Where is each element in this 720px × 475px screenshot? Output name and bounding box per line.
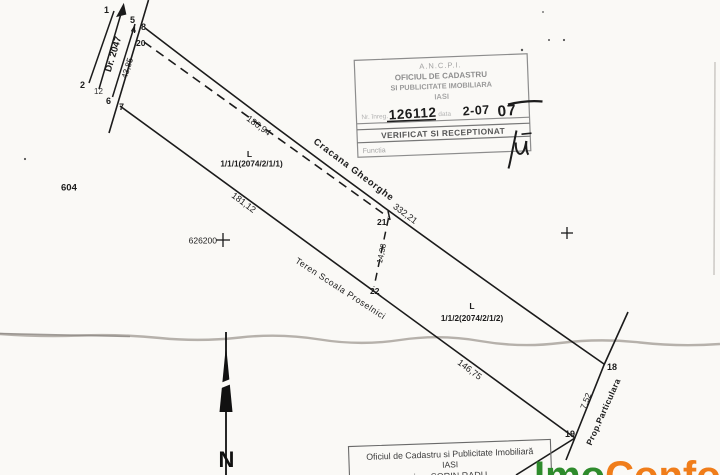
svg-text:626200: 626200 bbox=[189, 236, 218, 246]
svg-text:19: 19 bbox=[565, 429, 575, 439]
svg-text:20: 20 bbox=[136, 38, 146, 48]
svg-text:IASI: IASI bbox=[442, 459, 458, 470]
svg-text:7: 7 bbox=[119, 102, 124, 112]
svg-text:1/1/1(2074/2/1/1): 1/1/1(2074/2/1/1) bbox=[220, 160, 283, 169]
svg-text:A.N.C.P.I.: A.N.C.P.I. bbox=[419, 60, 462, 71]
svg-text:1: 1 bbox=[104, 5, 109, 15]
svg-text:2: 2 bbox=[80, 80, 85, 90]
svg-text:L: L bbox=[247, 149, 252, 159]
svg-text:2-07: 2-07 bbox=[462, 103, 490, 119]
svg-text:21: 21 bbox=[377, 217, 387, 227]
svg-text:12: 12 bbox=[94, 87, 103, 96]
svg-text:data: data bbox=[438, 111, 451, 118]
svg-text:18: 18 bbox=[607, 362, 617, 372]
svg-text:22: 22 bbox=[370, 286, 380, 296]
svg-text:4: 4 bbox=[131, 25, 136, 35]
svg-text:L: L bbox=[469, 301, 474, 311]
svg-text:8: 8 bbox=[141, 22, 146, 32]
svg-text:604: 604 bbox=[61, 183, 78, 194]
svg-text:Nr. înreg.: Nr. înreg. bbox=[361, 113, 388, 121]
svg-text:N: N bbox=[219, 447, 235, 472]
svg-text:07: 07 bbox=[497, 102, 518, 121]
svg-text:6: 6 bbox=[106, 96, 111, 106]
svg-text:ImoConfort: ImoConfort bbox=[534, 454, 720, 475]
svg-text:IASI: IASI bbox=[434, 92, 449, 102]
svg-text:1/1/2(2074/2/1/2): 1/1/2(2074/2/1/2) bbox=[441, 314, 504, 323]
svg-text:Functia: Functia bbox=[363, 147, 386, 155]
svg-text:5: 5 bbox=[130, 15, 135, 25]
